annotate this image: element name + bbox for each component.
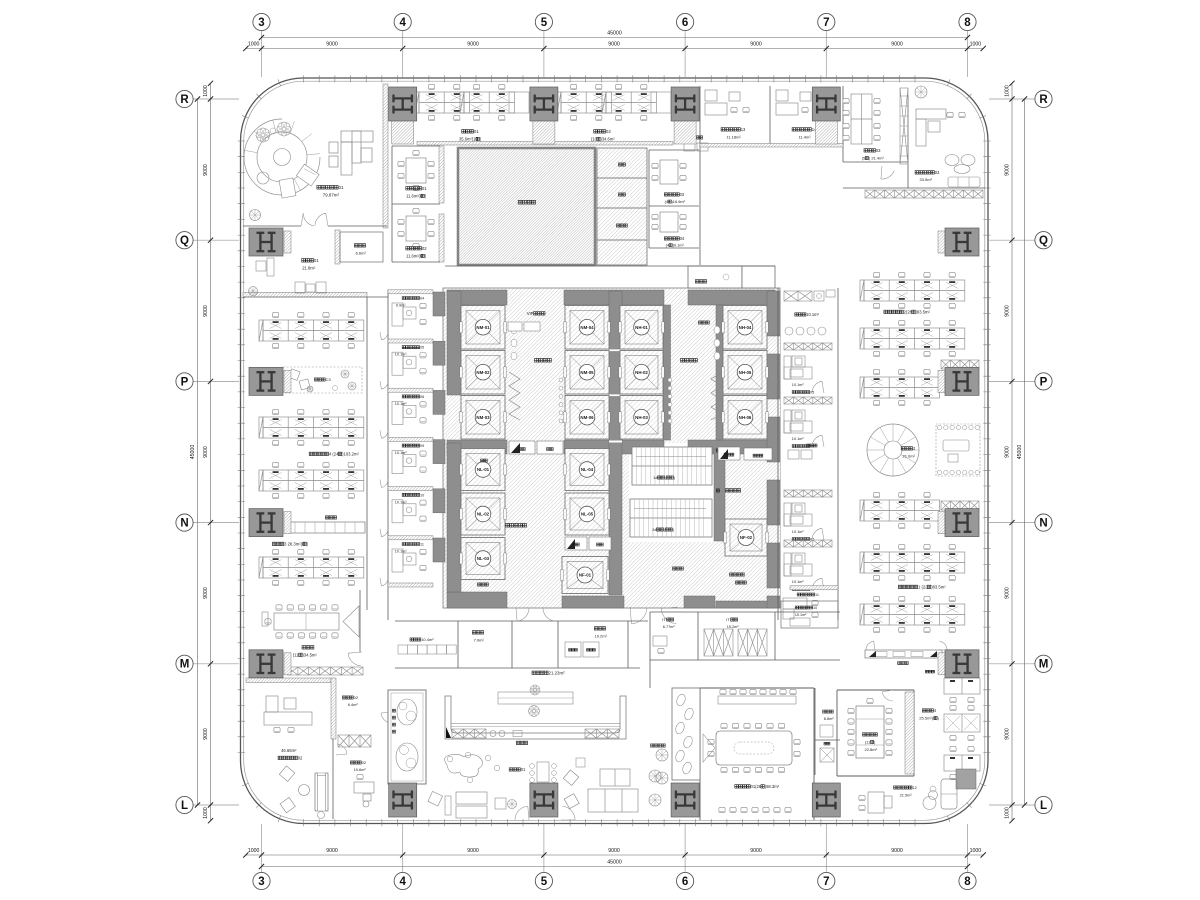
svg-text:5: 5 — [541, 876, 548, 888]
svg-text:10.1m²: 10.1m² — [395, 451, 408, 455]
svg-text:03: 03 — [680, 192, 685, 197]
svg-text:R: R — [1039, 94, 1048, 106]
svg-text:9000: 9000 — [750, 42, 762, 48]
svg-text:9000: 9000 — [326, 42, 338, 48]
svg-text:NH-01: NH-01 — [635, 325, 648, 330]
svg-text:04: 04 — [420, 297, 424, 301]
svg-text:NL-04: NL-04 — [581, 467, 594, 472]
svg-text:9000: 9000 — [203, 728, 209, 740]
svg-text:13: 13 — [741, 127, 746, 132]
svg-text:NL-01: NL-01 — [477, 467, 490, 472]
svg-text:) 21.4m²: ) 21.4m² — [869, 156, 885, 161]
svg-text:1000: 1000 — [203, 807, 209, 819]
svg-text:VIP: VIP — [527, 311, 534, 316]
svg-text:NH-04: NH-04 — [739, 325, 752, 330]
svg-text:46.66m²: 46.66m² — [281, 748, 297, 753]
svg-text:01: 01 — [339, 185, 345, 190]
svg-text:NM-01: NM-01 — [476, 325, 490, 330]
svg-text:)83.5m²: )83.5m² — [916, 310, 931, 315]
svg-text:)34.6m²: )34.6m² — [601, 137, 616, 142]
svg-text:11.4m²: 11.4m² — [799, 135, 812, 140]
svg-text:10.1m²: 10.1m² — [792, 580, 805, 584]
svg-text:01: 01 — [314, 258, 319, 263]
svg-text:9000: 9000 — [1005, 164, 1011, 176]
svg-text:9000: 9000 — [203, 446, 209, 458]
svg-text:)16.6m²: )16.6m² — [672, 199, 686, 204]
svg-text:9000: 9000 — [1005, 587, 1011, 599]
svg-text:01: 01 — [474, 129, 479, 134]
svg-text:1000: 1000 — [1005, 807, 1011, 819]
svg-text:2(28: 2(28 — [904, 310, 913, 315]
svg-text:6: 6 — [682, 17, 688, 29]
svg-text:(11: (11 — [865, 740, 871, 745]
svg-text:C3: C3 — [326, 377, 332, 382]
svg-text:11.18m²: 11.18m² — [726, 135, 741, 140]
svg-text:05: 05 — [420, 346, 424, 350]
svg-text:R: R — [180, 94, 189, 106]
svg-text:NM-02: NM-02 — [476, 370, 490, 375]
svg-text:11: 11 — [420, 543, 424, 547]
svg-text:45000: 45000 — [607, 860, 622, 866]
svg-text:1000: 1000 — [970, 42, 982, 48]
svg-text:M: M — [180, 659, 190, 671]
svg-text:P: P — [1040, 376, 1048, 388]
svg-text:NL-05: NL-05 — [581, 512, 594, 517]
svg-text:10: 10 — [813, 606, 817, 610]
svg-text:)34.5m²: )34.5m² — [302, 653, 317, 658]
svg-text:IT: IT — [662, 617, 666, 622]
svg-text:3 28.3m²(6: 3 28.3m²(6 — [284, 542, 305, 547]
svg-text:02: 02 — [362, 760, 367, 765]
svg-text:04: 04 — [680, 236, 685, 241]
svg-text:05: 05 — [810, 391, 814, 395]
svg-text:45000: 45000 — [1017, 445, 1023, 460]
svg-text:1 (22: 1 (22 — [918, 585, 928, 590]
svg-text:10.1m²: 10.1m² — [806, 312, 819, 317]
svg-text:M: M — [1039, 659, 1049, 671]
svg-text:9000: 9000 — [1005, 305, 1011, 317]
svg-text:5: 5 — [541, 17, 548, 29]
svg-text:10.1m²: 10.1m² — [395, 550, 408, 554]
svg-text:06: 06 — [420, 395, 424, 399]
svg-text:1000: 1000 — [248, 848, 260, 854]
svg-text:21.0m²: 21.0m² — [903, 454, 916, 459]
svg-text:)83.5m²: )83.5m² — [931, 585, 946, 590]
svg-text:8.8m²: 8.8m² — [824, 717, 834, 721]
svg-text:NH-03: NH-03 — [635, 415, 648, 420]
svg-text:NM-05: NM-05 — [580, 370, 594, 375]
svg-text:03: 03 — [935, 170, 940, 175]
svg-text:21.8m²: 21.8m² — [302, 266, 316, 271]
svg-text:7: 7 — [823, 17, 829, 29]
svg-text:L: L — [1040, 800, 1047, 812]
svg-text:9000: 9000 — [203, 305, 209, 317]
svg-text:4 (24: 4 (24 — [329, 452, 339, 457]
svg-text:03: 03 — [876, 148, 881, 153]
svg-text:4: 4 — [399, 876, 406, 888]
svg-text:NF-01: NF-01 — [579, 573, 592, 578]
svg-text:L: L — [181, 800, 188, 812]
svg-text:11.6m²(6: 11.6m²(6 — [406, 194, 423, 199]
svg-text:(11: (11 — [293, 653, 299, 658]
svg-text:3: 3 — [258, 17, 264, 29]
svg-text:9000: 9000 — [1005, 446, 1011, 458]
svg-text:21.23m²: 21.23m² — [549, 671, 566, 676]
svg-text:6.4m²: 6.4m² — [348, 702, 359, 707]
svg-text:8: 8 — [964, 876, 971, 888]
svg-text:9000: 9000 — [203, 587, 209, 599]
svg-text:7.9m²: 7.9m² — [474, 638, 485, 643]
svg-text:NM-03: NM-03 — [476, 415, 490, 420]
svg-text:02: 02 — [298, 756, 303, 761]
svg-text:35.6m²(10: 35.6m²(10 — [459, 137, 478, 142]
svg-text:6: 6 — [682, 876, 688, 888]
svg-text:)58.3m²: )58.3m² — [765, 784, 780, 789]
svg-text:10.1m²: 10.1m² — [395, 402, 408, 406]
svg-text:79.87m²: 79.87m² — [323, 193, 340, 198]
svg-text:9000: 9000 — [1005, 728, 1011, 740]
svg-text:10: 10 — [420, 493, 424, 497]
svg-text:02: 02 — [606, 129, 611, 134]
svg-text:1000: 1000 — [248, 42, 260, 48]
svg-text:10.1m²: 10.1m² — [792, 383, 805, 387]
svg-text:09: 09 — [420, 444, 424, 448]
svg-text:9000: 9000 — [608, 42, 620, 48]
svg-text:9000: 9000 — [891, 848, 903, 854]
svg-text:IT: IT — [726, 617, 730, 622]
svg-text:10.1m²: 10.1m² — [792, 530, 805, 534]
svg-text:1000: 1000 — [970, 848, 982, 854]
svg-text:NH-02: NH-02 — [635, 370, 648, 375]
svg-text:1000: 1000 — [1005, 85, 1011, 97]
svg-text:11.6m²(6: 11.6m²(6 — [406, 254, 423, 259]
svg-text:P: P — [181, 376, 189, 388]
svg-text:Q: Q — [180, 235, 189, 247]
svg-text:NH-06: NH-06 — [739, 415, 752, 420]
svg-text:9000: 9000 — [750, 848, 762, 854]
svg-text:21.5m²: 21.5m² — [900, 793, 913, 798]
svg-text:NM-06: NM-06 — [580, 415, 594, 420]
svg-text:01: 01 — [422, 186, 427, 191]
svg-text:9000: 9000 — [467, 848, 479, 854]
svg-text:10.1m²: 10.1m² — [792, 437, 805, 441]
svg-text:NL-03: NL-03 — [477, 556, 490, 561]
svg-text:7: 7 — [823, 876, 829, 888]
svg-text:11: 11 — [815, 593, 819, 597]
svg-text:N: N — [180, 518, 188, 530]
svg-text:8: 8 — [964, 17, 971, 29]
svg-text:15.2m²: 15.2m² — [727, 625, 740, 629]
svg-text:45000: 45000 — [607, 31, 622, 37]
svg-text:NF-02: NF-02 — [740, 535, 753, 540]
svg-text:01(26: 01(26 — [751, 784, 762, 789]
svg-text:25.5m²(8: 25.5m²(8 — [919, 716, 936, 721]
svg-text:10.1m²: 10.1m² — [395, 500, 408, 504]
svg-text:6.6m²: 6.6m² — [356, 251, 367, 256]
svg-text:02: 02 — [354, 695, 359, 700]
svg-text:)9.1m²: )9.1m² — [673, 243, 685, 248]
svg-text:10.1m²: 10.1m² — [395, 353, 408, 357]
svg-text:02: 02 — [422, 246, 427, 251]
svg-text:Q: Q — [1039, 235, 1048, 247]
svg-text:01: 01 — [521, 767, 526, 772]
svg-text:19.6m²: 19.6m² — [354, 767, 367, 772]
svg-text:N: N — [1039, 518, 1047, 530]
svg-text:45000: 45000 — [190, 445, 196, 460]
svg-text:9000: 9000 — [326, 848, 338, 854]
svg-text:6.77m²: 6.77m² — [663, 625, 676, 629]
svg-text:NH-05: NH-05 — [739, 370, 752, 375]
svg-text:9000: 9000 — [891, 42, 903, 48]
svg-text:10.1m²: 10.1m² — [795, 613, 807, 617]
svg-text:9000: 9000 — [608, 848, 620, 854]
svg-text:9000: 9000 — [467, 42, 479, 48]
svg-text:12: 12 — [912, 785, 917, 790]
svg-text:10.4m²: 10.4m² — [421, 637, 434, 642]
svg-text:33.5m²: 33.5m² — [920, 177, 933, 182]
svg-text:22.8m²: 22.8m² — [865, 747, 878, 752]
svg-text:10.2m²: 10.2m² — [595, 634, 608, 639]
svg-text:NM-04: NM-04 — [580, 325, 594, 330]
svg-text:9.9m²: 9.9m² — [396, 304, 406, 308]
svg-text:4: 4 — [399, 17, 406, 29]
svg-text:1000: 1000 — [203, 85, 209, 97]
svg-text:NL-02: NL-02 — [477, 512, 490, 517]
svg-text:3: 3 — [258, 876, 264, 888]
svg-text:)103.2m²: )103.2m² — [342, 452, 359, 457]
svg-text:9000: 9000 — [203, 164, 209, 176]
